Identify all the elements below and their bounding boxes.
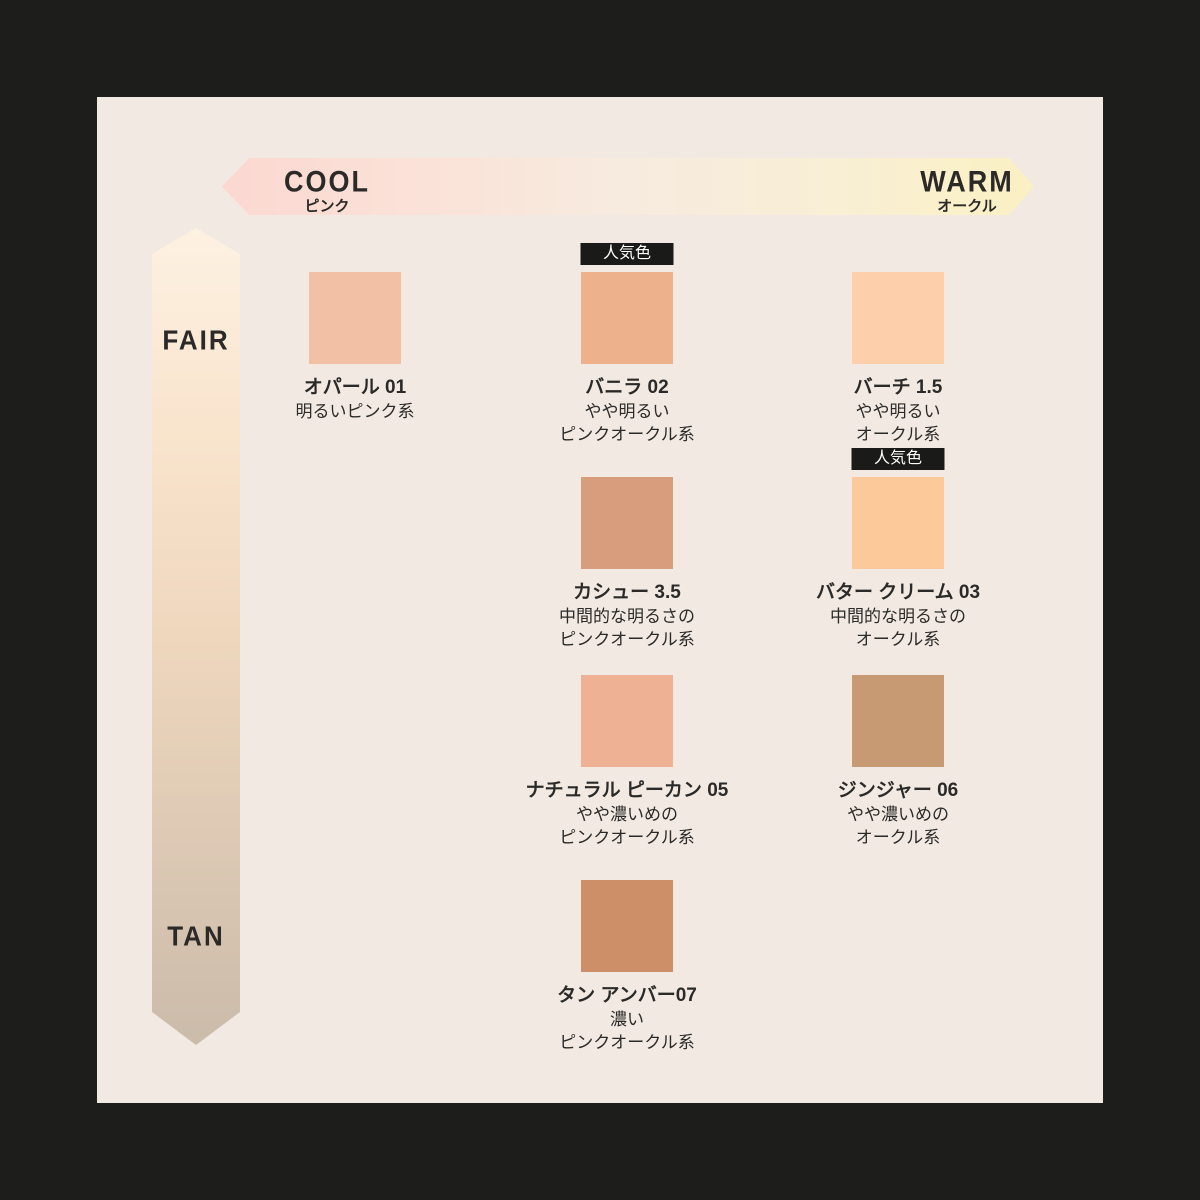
- shade-name: バニラ 02: [507, 376, 747, 400]
- shade-description: ピンクオークル系: [507, 1031, 747, 1054]
- shade-swatch: [852, 675, 944, 767]
- shade-swatch: [581, 880, 673, 972]
- shade-description: ピンクオークル系: [507, 826, 747, 849]
- warm-axis-label: WARM オークル: [912, 168, 1022, 217]
- shade-description: 明るいピンク系: [235, 400, 475, 423]
- popular-badge: 人気色: [581, 243, 674, 265]
- shade-swatch: [581, 477, 673, 569]
- popular-badge: 人気色: [852, 448, 945, 470]
- warm-sublabel: オークル: [912, 197, 1022, 217]
- shade-card-tan-amber-07: タン アンバー07 濃い ピンクオークル系: [507, 851, 747, 1054]
- shade-card-cashew-3-5: カシュー 3.5 中間的な明るさの ピンクオークル系: [507, 448, 747, 651]
- shade-swatch: [309, 272, 401, 364]
- canvas: { "panel": { "background": "#f2eae2", "o…: [0, 0, 1200, 1200]
- shade-description: やや明るい: [507, 400, 747, 423]
- shade-name: ジンジャー 06: [778, 779, 1018, 803]
- shade-description: 濃い: [507, 1008, 747, 1031]
- shade-name: バター クリーム 03: [778, 581, 1018, 605]
- fair-label: FAIR: [152, 324, 240, 357]
- shade-swatch: [852, 272, 944, 364]
- cool-axis-label: COOL ピンク: [272, 168, 382, 217]
- shade-name: ナチュラル ピーカン 05: [507, 779, 747, 803]
- shade-name: タン アンバー07: [507, 984, 747, 1008]
- shade-swatch: [581, 675, 673, 767]
- tan-label: TAN: [152, 920, 240, 953]
- shade-description: オークル系: [778, 826, 1018, 849]
- shade-card-natural-pecan-05: ナチュラル ピーカン 05 やや濃いめの ピンクオークル系: [507, 646, 747, 849]
- shade-swatch: [852, 477, 944, 569]
- cool-sublabel: ピンク: [272, 197, 382, 217]
- shade-swatch: [581, 272, 673, 364]
- shade-card-vanilla-02: 人気色 バニラ 02 やや明るい ピンクオークル系: [507, 243, 747, 446]
- shade-description: オークル系: [778, 423, 1018, 446]
- shade-name: カシュー 3.5: [507, 581, 747, 605]
- shade-description: ピンクオークル系: [507, 423, 747, 446]
- shade-card-opal-01: オパール 01 明るいピンク系: [235, 243, 475, 423]
- shade-description: やや明るい: [778, 400, 1018, 423]
- shade-card-ginger-06: ジンジャー 06 やや濃いめの オークル系: [778, 646, 1018, 849]
- shade-name: バーチ 1.5: [778, 376, 1018, 400]
- shade-card-butter-cream-03: 人気色 バター クリーム 03 中間的な明るさの オークル系: [778, 448, 1018, 651]
- shade-description: やや濃いめの: [507, 803, 747, 826]
- warm-label: WARM: [912, 167, 1022, 197]
- shade-description: 中間的な明るさの: [778, 605, 1018, 628]
- shade-chart-panel: COOL ピンク WARM オークル FAIR TAN オパール 01 明るいピ…: [97, 97, 1103, 1103]
- shade-card-birch-1-5: バーチ 1.5 やや明るい オークル系: [778, 243, 1018, 446]
- cool-label: COOL: [272, 167, 382, 197]
- shade-name: オパール 01: [235, 376, 475, 400]
- shade-description: やや濃いめの: [778, 803, 1018, 826]
- shade-description: 中間的な明るさの: [507, 605, 747, 628]
